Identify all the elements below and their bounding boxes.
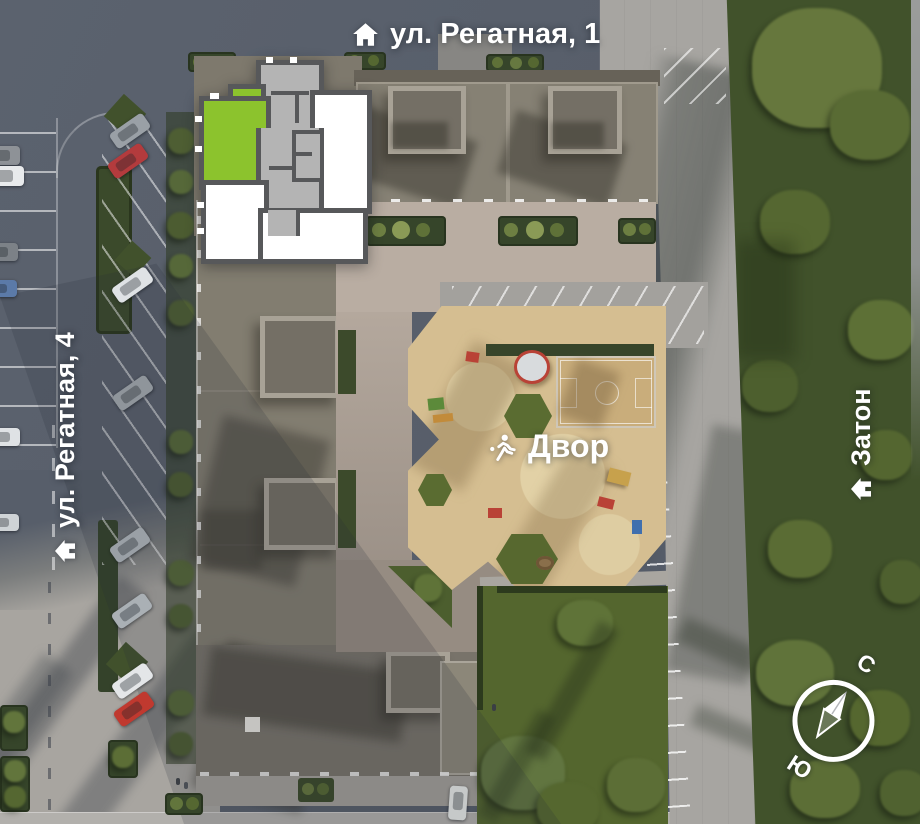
- street-label-top-text: ул. Регатная, 1: [390, 18, 600, 51]
- basketball-court: [556, 356, 656, 428]
- floor-plan-overlay: [196, 58, 366, 258]
- play-equipment: [514, 350, 550, 384]
- play-equipment: [536, 556, 554, 570]
- parked-car: [0, 166, 24, 186]
- play-equipment: [632, 520, 642, 534]
- play-equipment: [488, 508, 502, 518]
- courtyard-planter: [498, 216, 578, 246]
- building-roof: [196, 645, 488, 776]
- playground-icon: [487, 432, 517, 462]
- lane-dashes-dark: [48, 572, 51, 810]
- playground-hedge: [486, 344, 654, 356]
- building-roof: [356, 82, 508, 204]
- masterplan-map: ул. Регатная, 1 ул. Регатная, 4 Затон Дв…: [0, 0, 920, 824]
- street-planter: [0, 705, 28, 751]
- pedestrian: [184, 782, 188, 789]
- courtyard-label-text: Двор: [528, 428, 609, 465]
- street-label-right[interactable]: Затон: [841, 351, 881, 501]
- pedestrian: [176, 778, 180, 785]
- play-equipment: [427, 397, 444, 411]
- street-label-right-text: Затон: [846, 388, 877, 466]
- lawn: [477, 586, 668, 824]
- diagonal-stall-lines: [102, 120, 166, 565]
- street-planter: [108, 740, 138, 778]
- street-label-left[interactable]: ул. Регатная, 4: [45, 293, 85, 563]
- house-icon: [850, 477, 872, 501]
- courtyard-planter: [618, 218, 656, 244]
- plan-corridor-stub: [268, 210, 300, 236]
- street-planter: [165, 793, 203, 815]
- wall-planter: [338, 470, 356, 548]
- street-label-left-text: ул. Регатная, 4: [50, 332, 81, 528]
- parked-car: [0, 514, 19, 531]
- courtyard-planter: [366, 216, 446, 246]
- parked-car: [448, 785, 468, 820]
- courtyard-label: Двор: [487, 428, 609, 465]
- parked-car: [0, 428, 20, 446]
- right-edge-road: [911, 0, 920, 480]
- plan-utility-rooms: [292, 130, 324, 182]
- tree-strip: [166, 112, 196, 764]
- pedestrian: [492, 704, 496, 711]
- house-icon: [54, 539, 76, 563]
- play-equipment: [465, 351, 479, 363]
- street-label-top[interactable]: ул. Регатная, 1: [352, 18, 600, 51]
- parked-car: [0, 243, 18, 261]
- house-icon: [352, 22, 379, 47]
- wall-planter: [338, 330, 356, 394]
- road-diagonal-ticks: [664, 48, 726, 104]
- parked-car: [0, 146, 20, 165]
- hedge-south: [298, 778, 334, 802]
- street-planter: [0, 756, 30, 812]
- parked-car: [0, 280, 17, 297]
- building-roof: [508, 82, 658, 204]
